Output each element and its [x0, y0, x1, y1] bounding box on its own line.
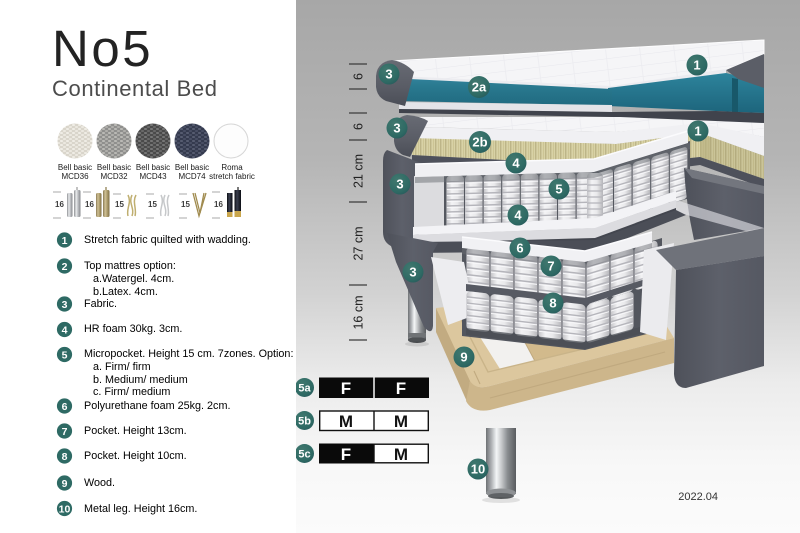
svg-text:7: 7 [62, 426, 68, 438]
svg-text:6: 6 [62, 401, 68, 413]
svg-text:21 cm: 21 cm [352, 154, 366, 188]
svg-text:9: 9 [460, 350, 467, 365]
svg-text:M: M [394, 412, 408, 431]
svg-text:5b: 5b [298, 416, 311, 428]
svg-text:6: 6 [516, 241, 523, 256]
svg-text:4: 4 [514, 208, 522, 223]
svg-text:4: 4 [62, 324, 68, 336]
svg-text:3: 3 [385, 67, 392, 82]
svg-text:9: 9 [62, 478, 68, 490]
svg-text:M: M [394, 445, 408, 464]
svg-text:1: 1 [693, 58, 700, 73]
svg-text:27 cm: 27 cm [352, 226, 366, 260]
svg-text:1: 1 [62, 235, 68, 247]
svg-text:F: F [341, 445, 351, 464]
svg-text:F: F [396, 379, 406, 398]
svg-text:3: 3 [396, 177, 403, 192]
svg-text:8: 8 [549, 296, 556, 311]
svg-text:2a: 2a [472, 80, 487, 95]
svg-text:3: 3 [393, 121, 400, 136]
svg-text:2: 2 [62, 261, 68, 273]
svg-text:F: F [341, 379, 351, 398]
svg-text:5a: 5a [298, 383, 311, 395]
svg-text:2022.04: 2022.04 [678, 491, 718, 503]
svg-text:10: 10 [471, 462, 485, 477]
svg-text:M: M [339, 412, 353, 431]
svg-text:16 cm: 16 cm [352, 295, 366, 329]
svg-text:7: 7 [547, 259, 554, 274]
svg-text:3: 3 [409, 265, 416, 280]
svg-text:6: 6 [352, 73, 366, 80]
svg-text:5: 5 [555, 182, 562, 197]
svg-text:4: 4 [512, 156, 520, 171]
svg-text:8: 8 [62, 451, 68, 463]
svg-text:1: 1 [694, 124, 701, 139]
svg-text:5: 5 [62, 349, 68, 361]
svg-text:6: 6 [352, 123, 366, 130]
svg-text:3: 3 [62, 299, 68, 311]
svg-text:2b: 2b [472, 135, 487, 150]
svg-text:10: 10 [59, 503, 71, 515]
svg-text:5c: 5c [298, 449, 310, 461]
